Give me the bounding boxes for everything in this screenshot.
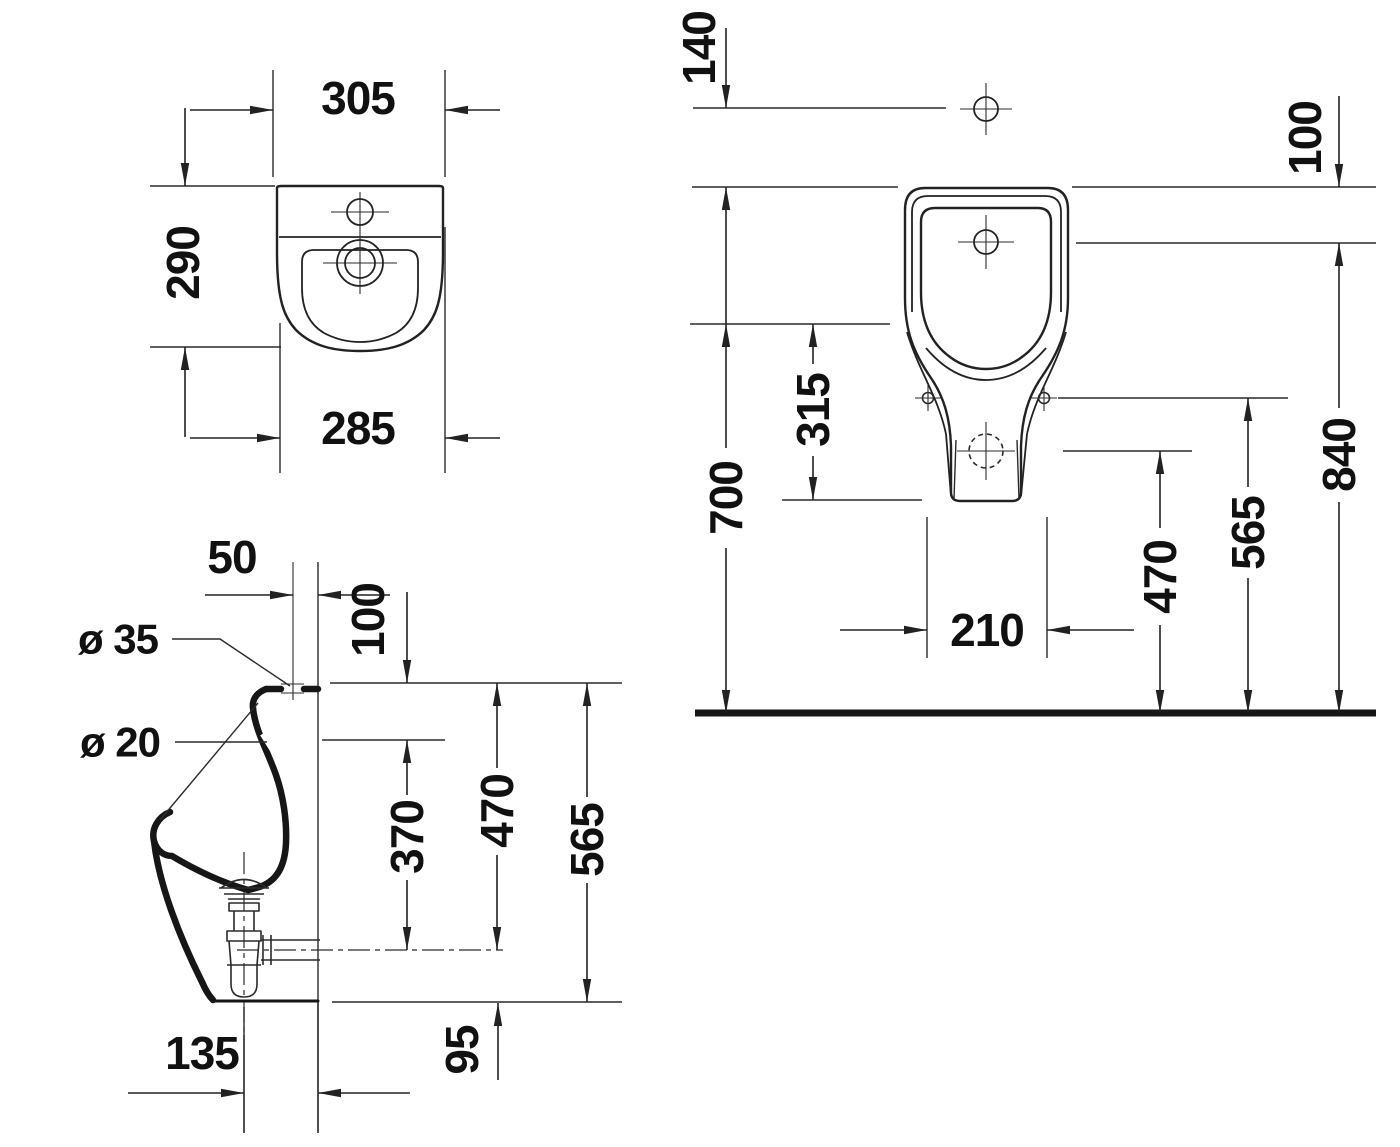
dim-front-inlet-to-floor: 840 xyxy=(1313,418,1365,492)
side-rim-and-inner-bowl xyxy=(153,812,248,890)
front-inlet-hole xyxy=(958,215,1014,269)
dim-front-fixing-drop: 315 xyxy=(787,373,839,447)
front-channel-line-right xyxy=(1017,440,1019,499)
dim-side-drain-drop: 370 xyxy=(381,800,433,874)
front-channel-line-left xyxy=(954,440,956,499)
dim-side-trap-to-wall: 135 xyxy=(165,1027,239,1079)
urinal-spec-drawing: 305 290 285 xyxy=(0,0,1400,1147)
front-holder-hole xyxy=(960,83,1012,135)
technical-drawing-canvas: 305 290 285 xyxy=(0,0,1400,1147)
side-drain-trap xyxy=(219,880,320,998)
label-rim-hole-diameter: ø 20 xyxy=(80,719,160,766)
label-inlet-diameter: ø 35 xyxy=(78,616,159,663)
plan-dimension-lines xyxy=(185,108,500,438)
dim-front-fixing-hole-span: 210 xyxy=(950,604,1024,656)
plan-view: 305 290 285 xyxy=(150,70,500,473)
side-inner-back-curve xyxy=(248,689,286,890)
front-left-converging-line xyxy=(907,332,951,496)
dim-side-rim-hole-drop: 100 xyxy=(342,583,394,657)
dim-front-inlet-below-top: 100 xyxy=(1279,101,1331,175)
front-view: 140 100 315 700 210 470 565 840 xyxy=(673,11,1376,713)
front-right-converging-line xyxy=(1021,332,1066,496)
dim-side-bottom-clearance: 95 xyxy=(436,1025,488,1075)
dim-plan-width-bottom: 285 xyxy=(321,402,395,454)
dim-plan-width-top: 305 xyxy=(321,72,395,124)
side-extension-lines xyxy=(244,1002,318,1133)
side-rim-edge-line xyxy=(160,703,258,820)
dim-front-holder-above-top: 140 xyxy=(673,11,725,85)
dim-side-inlet-to-wall: 50 xyxy=(207,531,256,583)
dim-side-outlet-axis-drop: 470 xyxy=(471,774,523,848)
leader-inlet-diameter xyxy=(172,639,290,686)
front-outlet-hole xyxy=(957,422,1015,480)
front-dimension-lines xyxy=(726,28,1339,713)
dim-front-outlet-to-floor: 470 xyxy=(1134,540,1186,614)
dim-side-body-height: 565 xyxy=(561,803,613,877)
dim-front-rim-to-floor: 700 xyxy=(700,461,752,535)
side-view: 50 100 ø 35 ø 20 370 470 565 95 135 xyxy=(78,531,622,1133)
dim-plan-depth: 290 xyxy=(157,226,209,300)
dim-front-fixing-to-floor: 565 xyxy=(1222,496,1274,570)
side-section-outline xyxy=(153,684,318,1001)
